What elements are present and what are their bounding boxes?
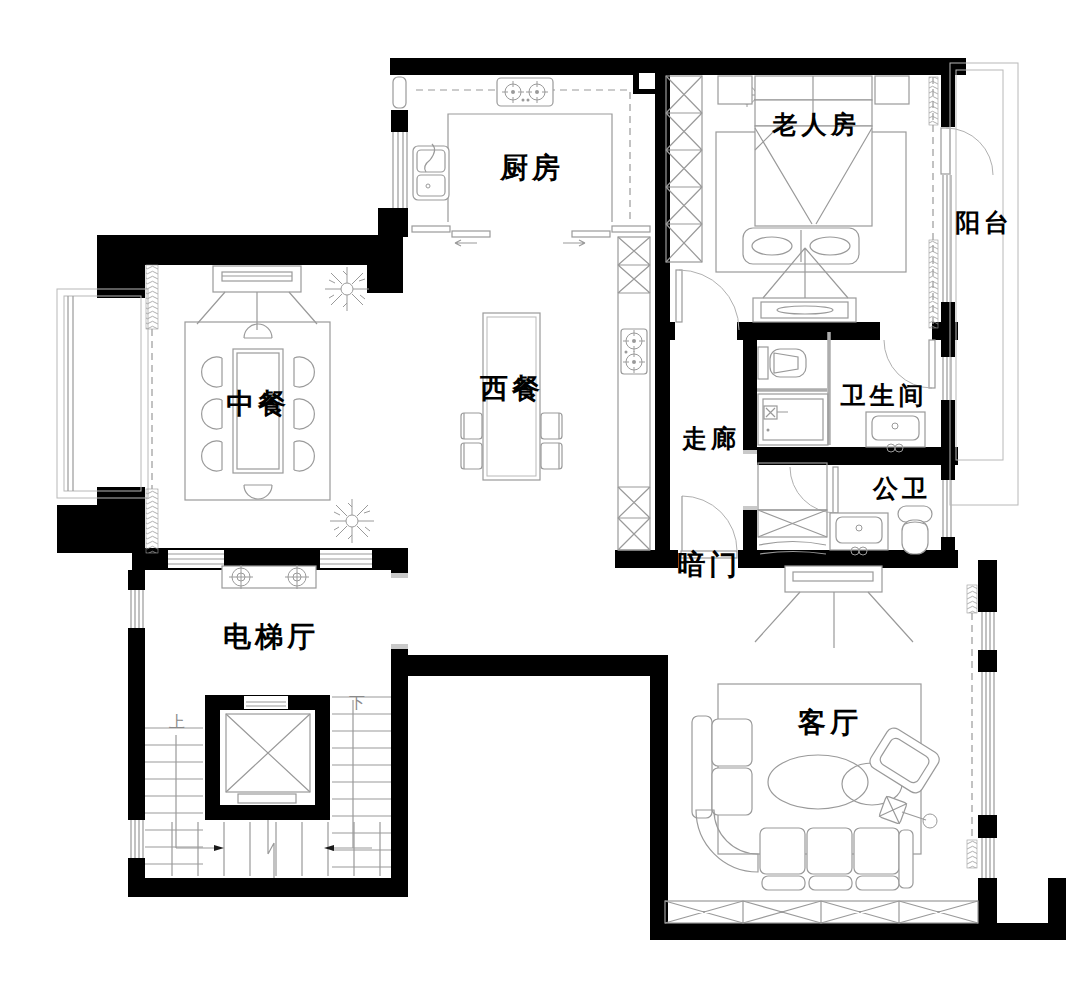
counter-stove-icon: [621, 329, 647, 374]
ac-unit-icon: [197, 266, 317, 330]
kitchen-service-door: [391, 75, 408, 110]
wardrobe-icon: [666, 76, 702, 262]
label-bathroom: 卫生间: [840, 382, 928, 409]
toilet-icon: [758, 347, 806, 379]
label-chinese-dining: 中餐: [226, 388, 290, 419]
bathroom-door: [884, 340, 935, 388]
label-elder-room: 老人房: [772, 111, 860, 138]
label-western-dining: 西餐: [479, 373, 544, 404]
balcony-glass: [941, 175, 955, 302]
balcony-door: [941, 128, 993, 175]
label-public-bathroom: 公卫: [872, 475, 931, 502]
curtain-icon: [146, 265, 158, 329]
kitchen: [413, 78, 630, 222]
label-stairs-down: 下: [349, 694, 365, 711]
elder-room-door: [676, 270, 739, 330]
tv-cabinet-icon: [665, 901, 978, 923]
label-kitchen: 厨房: [499, 152, 564, 183]
elevator-hall-opening: [391, 573, 408, 649]
tall-cabinet-column: [618, 237, 650, 550]
label-corridor: 走廊: [681, 425, 740, 452]
floor-plan-page: 厨房 老人房 阳台 中餐 西餐 走廊 卫生间 公卫 暗门 电梯厅 客厅 上 下: [0, 0, 1080, 994]
public-toilet-icon: [898, 506, 932, 554]
label-elevator-hall: 电梯厅: [223, 621, 319, 652]
kitchen-sliding-doors: [412, 226, 650, 246]
public-bathroom: [830, 506, 932, 555]
public-bathroom-window: [941, 480, 955, 537]
kitchen-window: [391, 132, 408, 208]
floor-plan-drawing: 厨房 老人房 阳台 中餐 西餐 走廊 卫生间 公卫 暗门 电梯厅 客厅 上 下: [0, 0, 1080, 994]
living-room: [665, 566, 978, 923]
gas-stove-icon: [497, 78, 553, 106]
elevator-hall-window-lower: [128, 820, 145, 858]
kitchen-sink-icon: [413, 144, 449, 200]
label-stairs-up: 上: [169, 713, 185, 730]
curtain-icon: [146, 489, 158, 553]
curtain-icon: [967, 840, 977, 868]
label-balcony: 阳台: [955, 209, 1013, 236]
living-ac-icon: [755, 566, 913, 648]
curtain-icon: [967, 585, 977, 613]
label-living-room: 客厅: [797, 707, 862, 738]
armchair-icon: [867, 725, 942, 796]
bay-window: [57, 289, 148, 498]
floor-lamp-icon: [879, 796, 937, 828]
public-vanity-icon: [830, 513, 888, 555]
corridor-closet-opening: [743, 450, 757, 510]
public-bathroom-door: [790, 467, 838, 513]
bed-icon: [718, 76, 909, 226]
bathroom-window: [941, 357, 955, 400]
elevator-hall-window-upper: [128, 590, 145, 628]
radiator-icon: [222, 565, 316, 589]
chinese-dining: [146, 265, 374, 589]
plant-icon: [330, 499, 374, 543]
bathroom-vanity-icon: [866, 412, 925, 452]
shower-icon: [758, 394, 828, 445]
label-hidden-door: 暗门: [677, 549, 741, 580]
elevator-shaft-icon: [205, 695, 330, 820]
bedroom-bench-icon: [743, 228, 859, 264]
plant-icon: [325, 267, 369, 311]
